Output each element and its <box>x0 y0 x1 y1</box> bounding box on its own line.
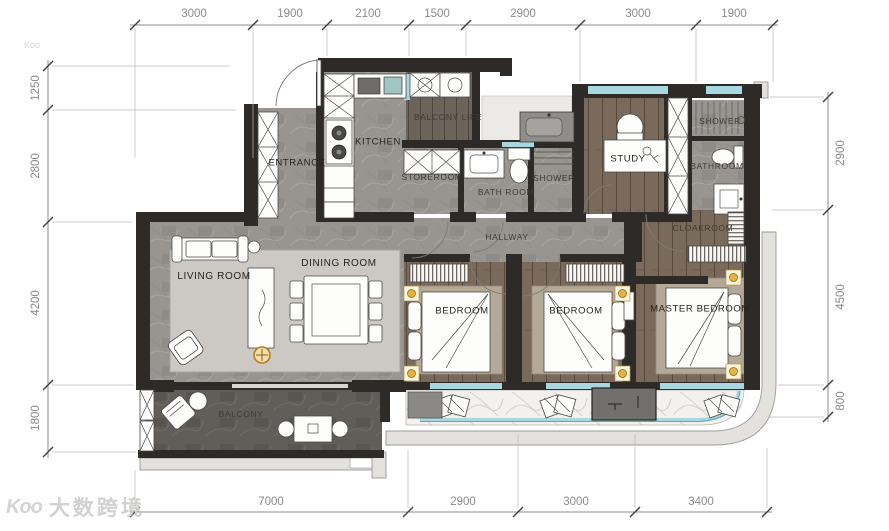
floor-plan-drawing <box>0 0 889 531</box>
dining-table <box>290 276 382 344</box>
dim-top-5: 2900 <box>510 8 536 20</box>
dim-right-2: 4500 <box>835 284 847 310</box>
entrance-door-leaf <box>317 60 321 106</box>
room-label-balcony: BALCONY <box>219 410 264 419</box>
master-window <box>660 383 744 389</box>
kitchen-cooktop <box>384 77 402 94</box>
dim-bottom-3: 3000 <box>563 496 589 508</box>
study-window <box>588 86 668 94</box>
bath-fixtures <box>464 148 530 183</box>
dim-top-7: 1900 <box>721 8 747 20</box>
watermark-mini: Koo <box>24 40 40 50</box>
floor-lamp-icon <box>254 347 270 363</box>
room-label-bathroom: BATHROOM <box>690 162 743 171</box>
tv-console <box>248 268 274 348</box>
laundry-counter <box>520 112 574 142</box>
room-label-kitchen: KITCHEN <box>355 137 401 147</box>
dim-right-3: 800 <box>835 391 847 410</box>
cloakroom-wardrobe <box>688 246 746 262</box>
dim-top-1: 3000 <box>181 8 207 20</box>
room-label-storeroom: STOREROOM <box>402 173 463 182</box>
room-label-shower-top: SHOWER <box>699 117 741 126</box>
dim-top-2: 1900 <box>277 8 303 20</box>
room-label-study: STUDY <box>610 154 645 164</box>
equipment-platform <box>592 388 656 420</box>
watermark: Koo 大数跨境 <box>6 492 145 522</box>
storeroom-cabinet <box>404 150 460 174</box>
washing-machines <box>410 73 470 97</box>
hall-wardrobe-column <box>668 98 688 214</box>
room-label-bedroom-2: BEDROOM <box>549 306 602 316</box>
room-label-hallway: HALLWAY <box>485 233 528 242</box>
dim-top-4: 1500 <box>424 8 450 20</box>
kitchen-sink <box>358 78 380 94</box>
dim-left-3: 4200 <box>30 290 42 316</box>
sofa <box>172 236 248 262</box>
dim-bottom-2: 2900 <box>450 496 476 508</box>
room-label-living-room: LIVING ROOM <box>177 272 250 282</box>
dim-top-3: 2100 <box>355 8 381 20</box>
watermark-logo: Koo <box>6 496 42 519</box>
room-label-balcony-life: BALCONY LIFE <box>414 113 482 122</box>
dim-top-6: 3000 <box>625 8 651 20</box>
room-label-cloakroom: CLOAKROOM <box>673 224 734 233</box>
room-label-entrance: ENTRANCE <box>268 158 325 168</box>
side-table <box>248 241 260 253</box>
room-label-dining-room: DINING ROOM <box>301 259 377 269</box>
balcony-sliding-door <box>232 384 348 388</box>
dim-bottom-1: 7000 <box>258 496 284 508</box>
bedroom1-window <box>430 383 502 389</box>
shower-window <box>706 86 742 94</box>
dim-left-1: 1250 <box>30 75 42 101</box>
room-label-master-bedroom: MASTER BEDROOM <box>650 304 750 314</box>
dim-right-1: 2900 <box>835 140 847 166</box>
room-label-bath-room: BATH ROOM <box>478 188 534 197</box>
bath-window <box>502 142 534 147</box>
dim-left-2: 2800 <box>30 153 42 179</box>
room-label-bedroom-1: BEDROOM <box>435 306 488 316</box>
dim-left-4: 1800 <box>30 405 42 431</box>
watermark-text: 大数跨境 <box>49 492 145 522</box>
room-label-shower-mid: SHOWER <box>533 174 575 183</box>
entrance-door-arc <box>276 60 318 106</box>
dim-bottom-4: 3400 <box>688 496 714 508</box>
floor-plan-page: 3000 1900 2100 1500 2900 3000 1900 1250 … <box>0 0 889 531</box>
